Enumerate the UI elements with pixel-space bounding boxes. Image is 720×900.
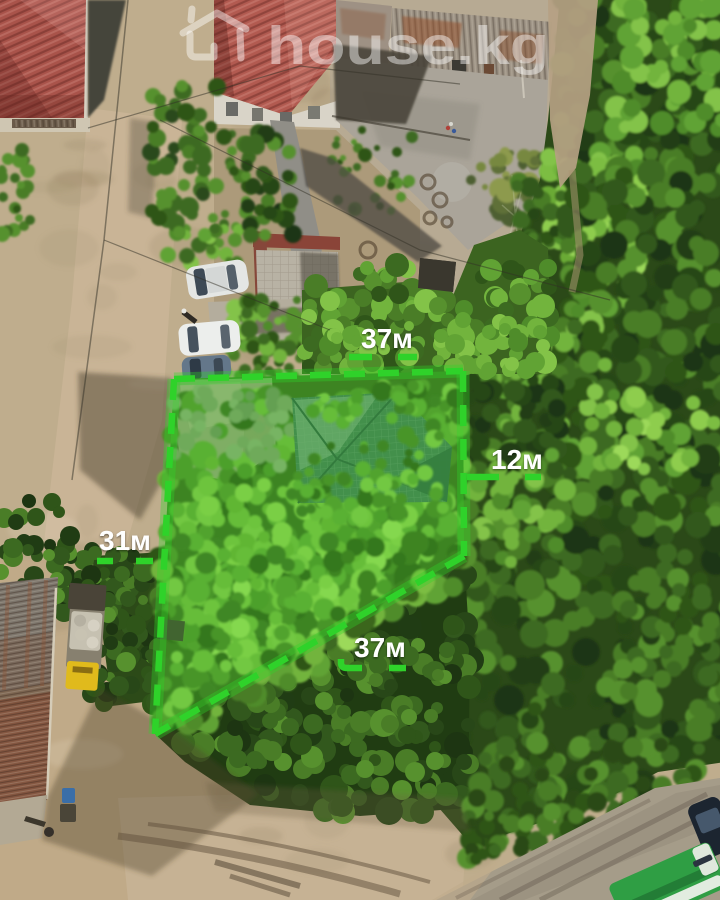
svg-text:house.kg: house.kg: [267, 16, 549, 76]
svg-text:12м: 12м: [491, 444, 543, 475]
svg-text:37м: 37м: [354, 632, 406, 663]
svg-text:31м: 31м: [99, 525, 151, 556]
svg-text:37м: 37м: [361, 323, 413, 354]
